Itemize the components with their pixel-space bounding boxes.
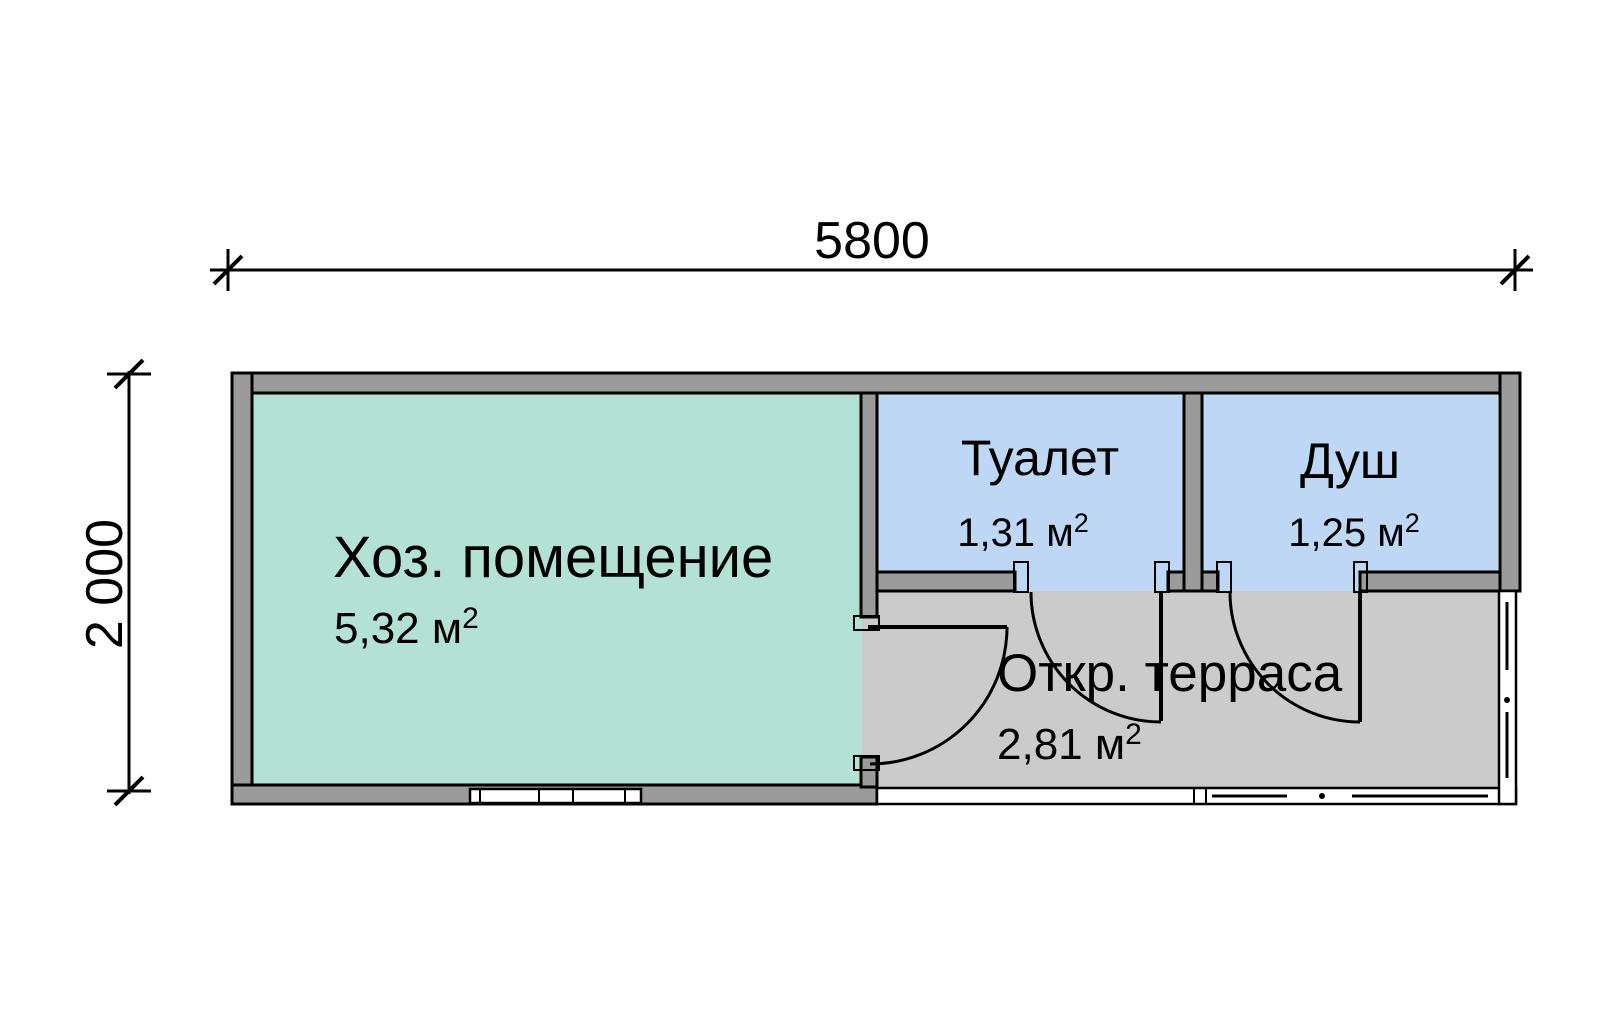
wall-shower-bottom-left bbox=[1202, 572, 1218, 591]
dimension-top-label: 5800 bbox=[814, 212, 930, 270]
wall-toilet-shower-partition bbox=[1184, 393, 1202, 591]
utility-room-area: 5,32 м2 bbox=[334, 602, 479, 653]
wall-toilet-bottom-right bbox=[1168, 572, 1184, 591]
utility-room-name: Хоз. помещение bbox=[333, 525, 773, 590]
wall-left bbox=[232, 373, 252, 804]
window-frame bbox=[470, 789, 641, 803]
shower-room-area: 1,25 м2 bbox=[1288, 508, 1420, 555]
toilet-room-name: Туалет bbox=[961, 430, 1119, 486]
terrace-edge-bottom-centerline-dot bbox=[1319, 793, 1325, 799]
toilet-room-floor bbox=[877, 393, 1184, 591]
dimension-top: 5800 bbox=[210, 212, 1533, 291]
wall-utility-toilet-upper bbox=[861, 393, 877, 617]
wall-utility-terrace-lower bbox=[861, 757, 877, 787]
wall-toilet-bottom-left bbox=[877, 572, 1015, 591]
wall-right-upper bbox=[1500, 373, 1520, 591]
toilet-room-area: 1,31 м2 bbox=[957, 508, 1089, 555]
floor-plan-svg: 5800 2 000 Хоз. помещение 5,32 м2 Туалет… bbox=[0, 0, 1600, 1029]
wall-shower-bottom-right bbox=[1360, 572, 1500, 591]
window bbox=[470, 789, 641, 803]
wall-top bbox=[232, 373, 1520, 393]
dimension-left-label: 2 000 bbox=[76, 519, 134, 649]
shower-room-name: Душ bbox=[1300, 433, 1400, 489]
shower-room-floor bbox=[1202, 393, 1498, 591]
dimension-left: 2 000 bbox=[76, 360, 151, 805]
terrace-edge-right-centerline-dot bbox=[1504, 697, 1510, 703]
terrace-name: Откр. терраса bbox=[997, 644, 1343, 703]
floor-plan-page: 5800 2 000 Хоз. помещение 5,32 м2 Туалет… bbox=[0, 0, 1600, 1029]
terrace-area: 2,81 м2 bbox=[997, 718, 1142, 769]
